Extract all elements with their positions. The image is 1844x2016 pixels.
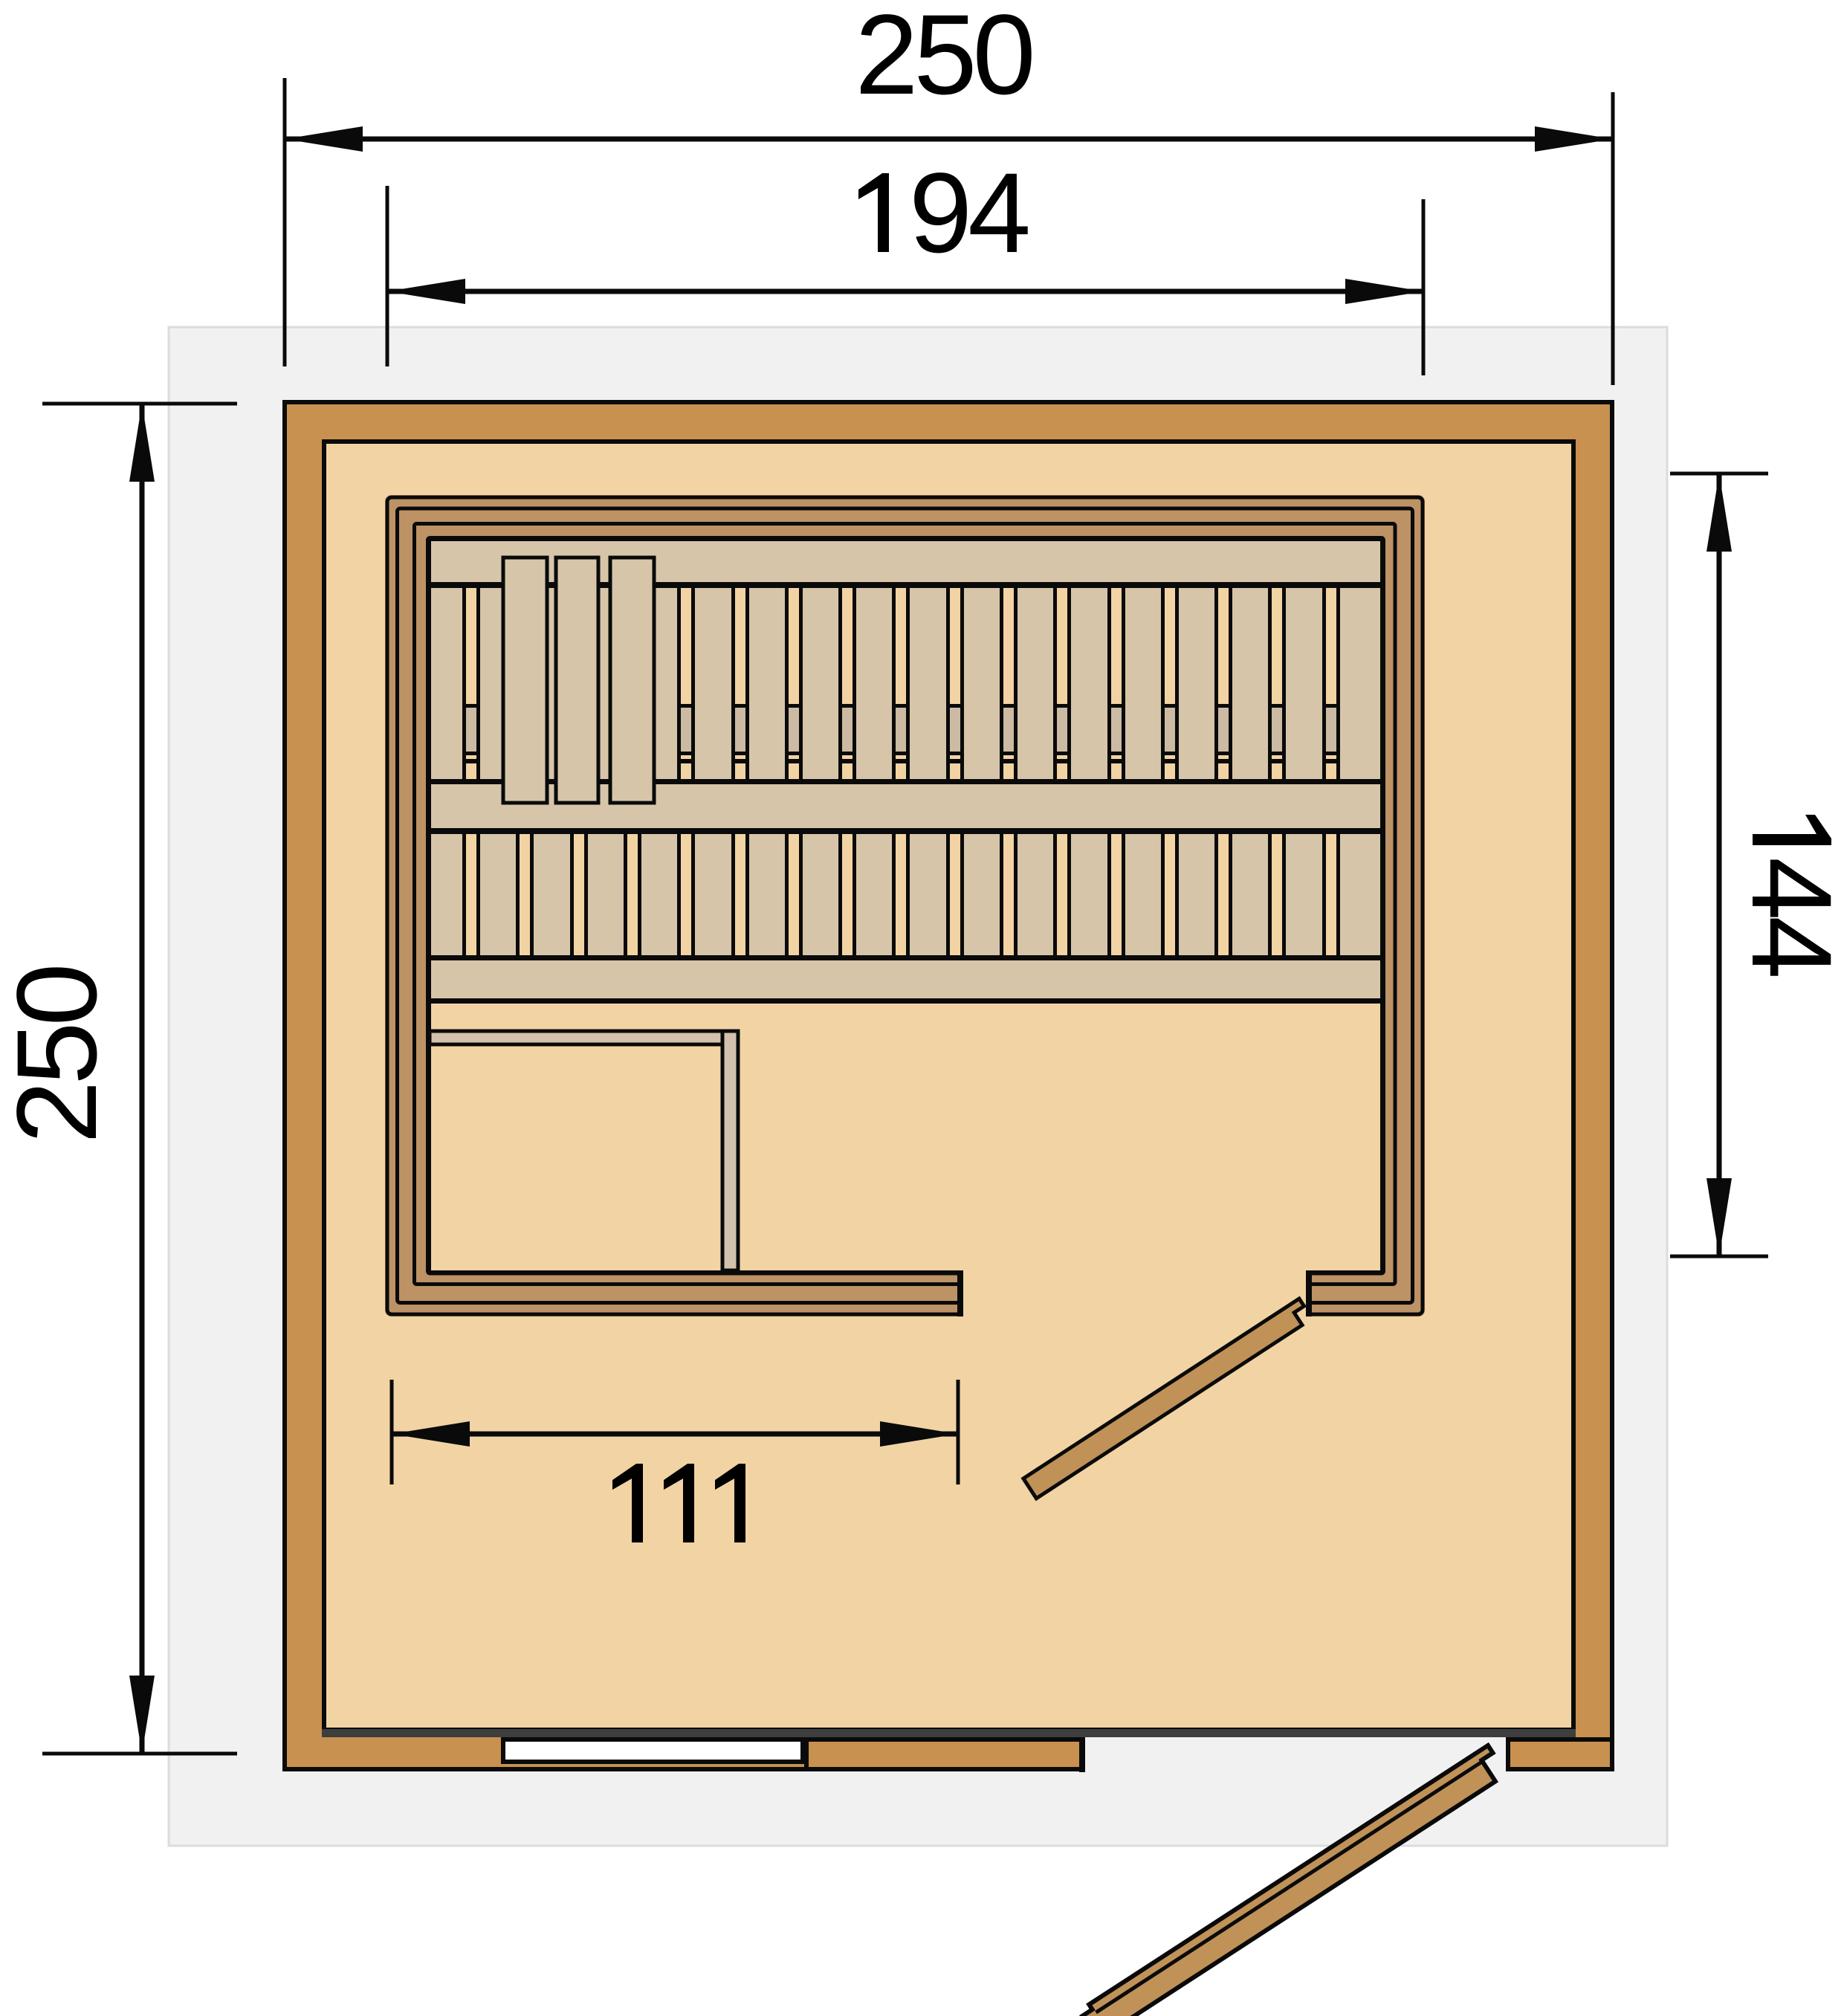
svg-text:250: 250 bbox=[0, 966, 120, 1143]
svg-text:44: 44 bbox=[1728, 857, 1844, 976]
svg-text:94: 94 bbox=[909, 149, 1028, 277]
svg-text:250: 250 bbox=[855, 0, 1032, 118]
